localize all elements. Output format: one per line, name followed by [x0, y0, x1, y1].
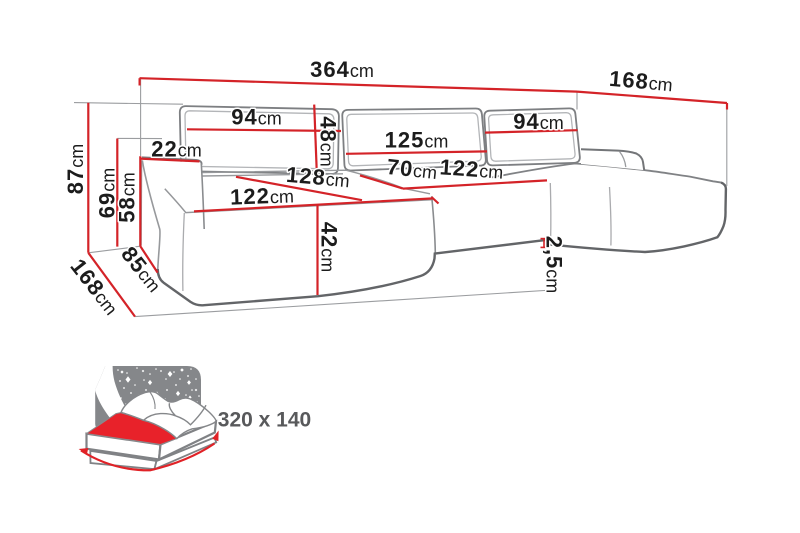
svg-text:48cm: 48cm	[316, 116, 341, 166]
svg-text:87cm: 87cm	[63, 144, 88, 194]
svg-text:22cm: 22cm	[151, 137, 201, 162]
svg-text:122cm: 122cm	[230, 182, 295, 209]
svg-text:364cm: 364cm	[310, 57, 374, 82]
svg-text:94cm: 94cm	[231, 105, 281, 130]
svg-text:42cm: 42cm	[317, 222, 342, 272]
svg-text:125cm: 125cm	[385, 128, 449, 153]
svg-text:320 x 140: 320 x 140	[218, 409, 311, 432]
svg-text:58cm: 58cm	[115, 172, 140, 222]
svg-text:2,5cm: 2,5cm	[542, 236, 567, 294]
svg-text:94cm: 94cm	[513, 109, 563, 134]
